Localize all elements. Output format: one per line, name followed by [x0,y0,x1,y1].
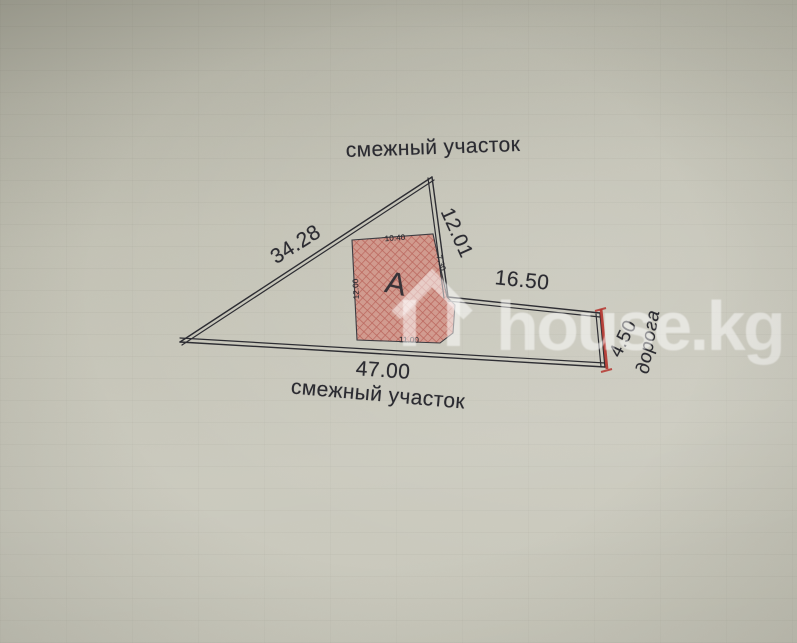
plot-plan-drawing [0,0,797,643]
paper-grain [0,0,797,643]
plot-plan-photo: смежный участок 34.28 12.01 16.50 47.00 … [0,0,797,643]
building-dimension-top: 10.40 [384,233,405,243]
building-dimension-left: 12.00 [351,279,361,300]
building-dimension-bottom: 11.00 [399,335,419,345]
